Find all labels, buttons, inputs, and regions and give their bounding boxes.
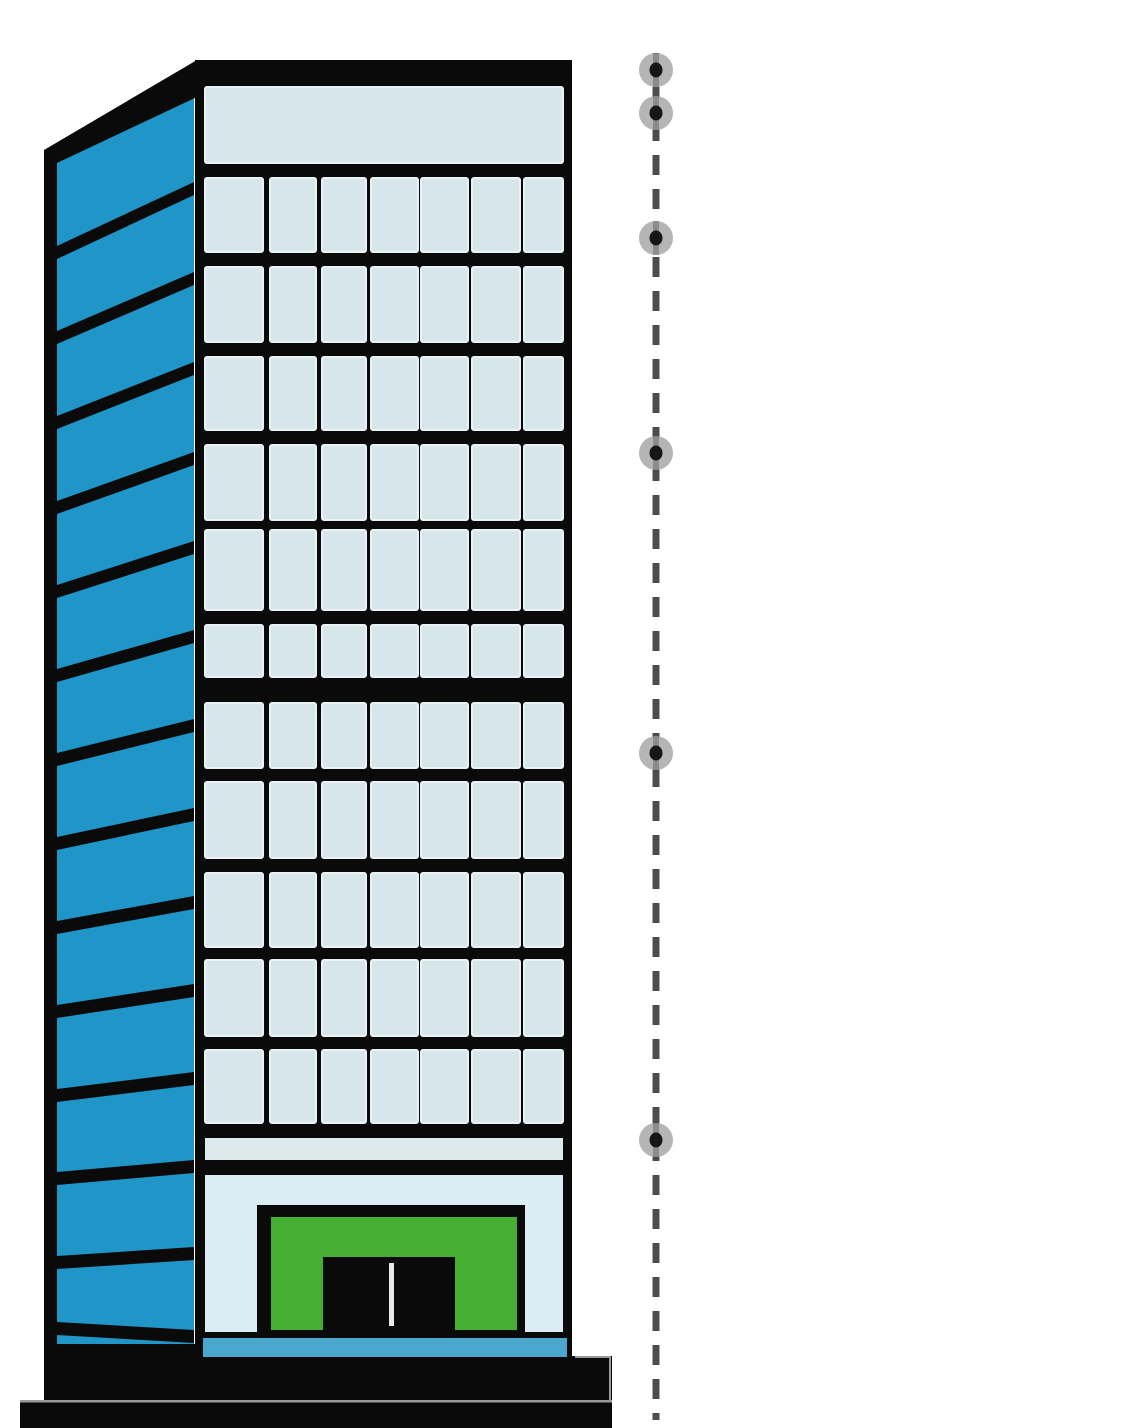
window-r9-c3 (322, 873, 366, 947)
window-r6-c2 (270, 625, 316, 677)
window-r9-c6 (472, 873, 520, 947)
window-r3-c1 (205, 357, 263, 430)
window-r7-c7 (524, 703, 563, 768)
window-r1-c7 (524, 178, 563, 252)
window-r8-c7 (524, 782, 563, 858)
window-r2-c6 (472, 267, 520, 342)
window-r6-c3 (322, 625, 366, 677)
window-r10-c7 (524, 960, 563, 1036)
window-r2-c3 (322, 267, 366, 342)
window-r11-c6 (472, 1050, 520, 1123)
side-left-edge (44, 150, 57, 1402)
window-r3-c6 (472, 357, 520, 430)
window-r7-c6 (472, 703, 520, 768)
window-r11-c1 (205, 1050, 263, 1123)
window-r11-c3 (322, 1050, 366, 1123)
spandrel-strip (205, 1138, 563, 1160)
window-r8-c2 (270, 782, 316, 858)
window-r7-c2 (270, 703, 316, 768)
scene-svg (0, 0, 1136, 1428)
window-r2-c2 (270, 267, 316, 342)
top-floor-window (205, 87, 563, 163)
window-r8-c3 (322, 782, 366, 858)
window-r5-c1 (205, 530, 263, 610)
window-r9-c2 (270, 873, 316, 947)
window-r10-c5 (421, 960, 468, 1036)
ground-bar (20, 1402, 612, 1428)
window-r10-c4 (371, 960, 418, 1036)
window-r2-c7 (524, 267, 563, 342)
window-r8-c1 (205, 782, 263, 858)
window-r2-c5 (421, 267, 468, 342)
window-r3-c7 (524, 357, 563, 430)
window-r7-c4 (371, 703, 418, 768)
window-r10-c1 (205, 960, 263, 1036)
window-r2-c4 (371, 267, 418, 342)
window-r1-c1 (205, 178, 263, 252)
window-r5-c3 (322, 530, 366, 610)
window-r10-c6 (472, 960, 520, 1036)
window-r1-c2 (270, 178, 316, 252)
window-r9-c4 (371, 873, 418, 947)
window-r4-c5 (421, 445, 468, 520)
window-r8-c6 (472, 782, 520, 858)
window-r2-c1 (205, 267, 263, 342)
window-r3-c4 (371, 357, 418, 430)
window-r6-c1 (205, 625, 263, 677)
window-r3-c3 (322, 357, 366, 430)
window-r1-c5 (421, 178, 468, 252)
window-r9-c1 (205, 873, 263, 947)
window-r7-c5 (421, 703, 468, 768)
window-r11-c7 (524, 1050, 563, 1123)
window-r8-c5 (421, 782, 468, 858)
window-r4-c3 (322, 445, 366, 520)
window-r5-c7 (524, 530, 563, 610)
window-r4-c1 (205, 445, 263, 520)
window-r11-c2 (270, 1050, 316, 1123)
window-r3-c2 (270, 357, 316, 430)
window-r11-c4 (371, 1050, 418, 1123)
window-r7-c3 (322, 703, 366, 768)
window-r7-c1 (205, 703, 263, 768)
window-r1-c6 (472, 178, 520, 252)
window-r5-c5 (421, 530, 468, 610)
window-r4-c6 (472, 445, 520, 520)
window-r3-c5 (421, 357, 468, 430)
window-r8-c4 (371, 782, 418, 858)
marker-core-dot-1 (650, 63, 663, 78)
window-r1-c4 (371, 178, 418, 252)
window-r4-c4 (371, 445, 418, 520)
marker-core-dot-5 (650, 746, 663, 761)
window-r4-c7 (524, 445, 563, 520)
window-r11-c5 (421, 1050, 468, 1123)
window-r9-c5 (421, 873, 468, 947)
window-r10-c2 (270, 960, 316, 1036)
window-r5-c2 (270, 530, 316, 610)
window-r4-c2 (270, 445, 316, 520)
window-r10-c3 (322, 960, 366, 1036)
marker-core-dot-6 (650, 1133, 663, 1148)
door-divider (389, 1263, 394, 1326)
window-r6-c7 (524, 625, 563, 677)
window-r6-c5 (421, 625, 468, 677)
window-r1-c3 (322, 178, 366, 252)
window-r9-c7 (524, 873, 563, 947)
marker-core-dot-3 (650, 231, 663, 246)
ground-highlight-line (20, 1400, 612, 1403)
window-r5-c4 (371, 530, 418, 610)
window-r6-c6 (472, 625, 520, 677)
marker-core-dot-2 (650, 106, 663, 121)
window-r6-c4 (371, 625, 418, 677)
free-fall-building-illustration (0, 0, 1136, 1428)
marker-core-dot-4 (650, 446, 663, 461)
base-trim (203, 1338, 567, 1357)
window-r5-c6 (472, 530, 520, 610)
